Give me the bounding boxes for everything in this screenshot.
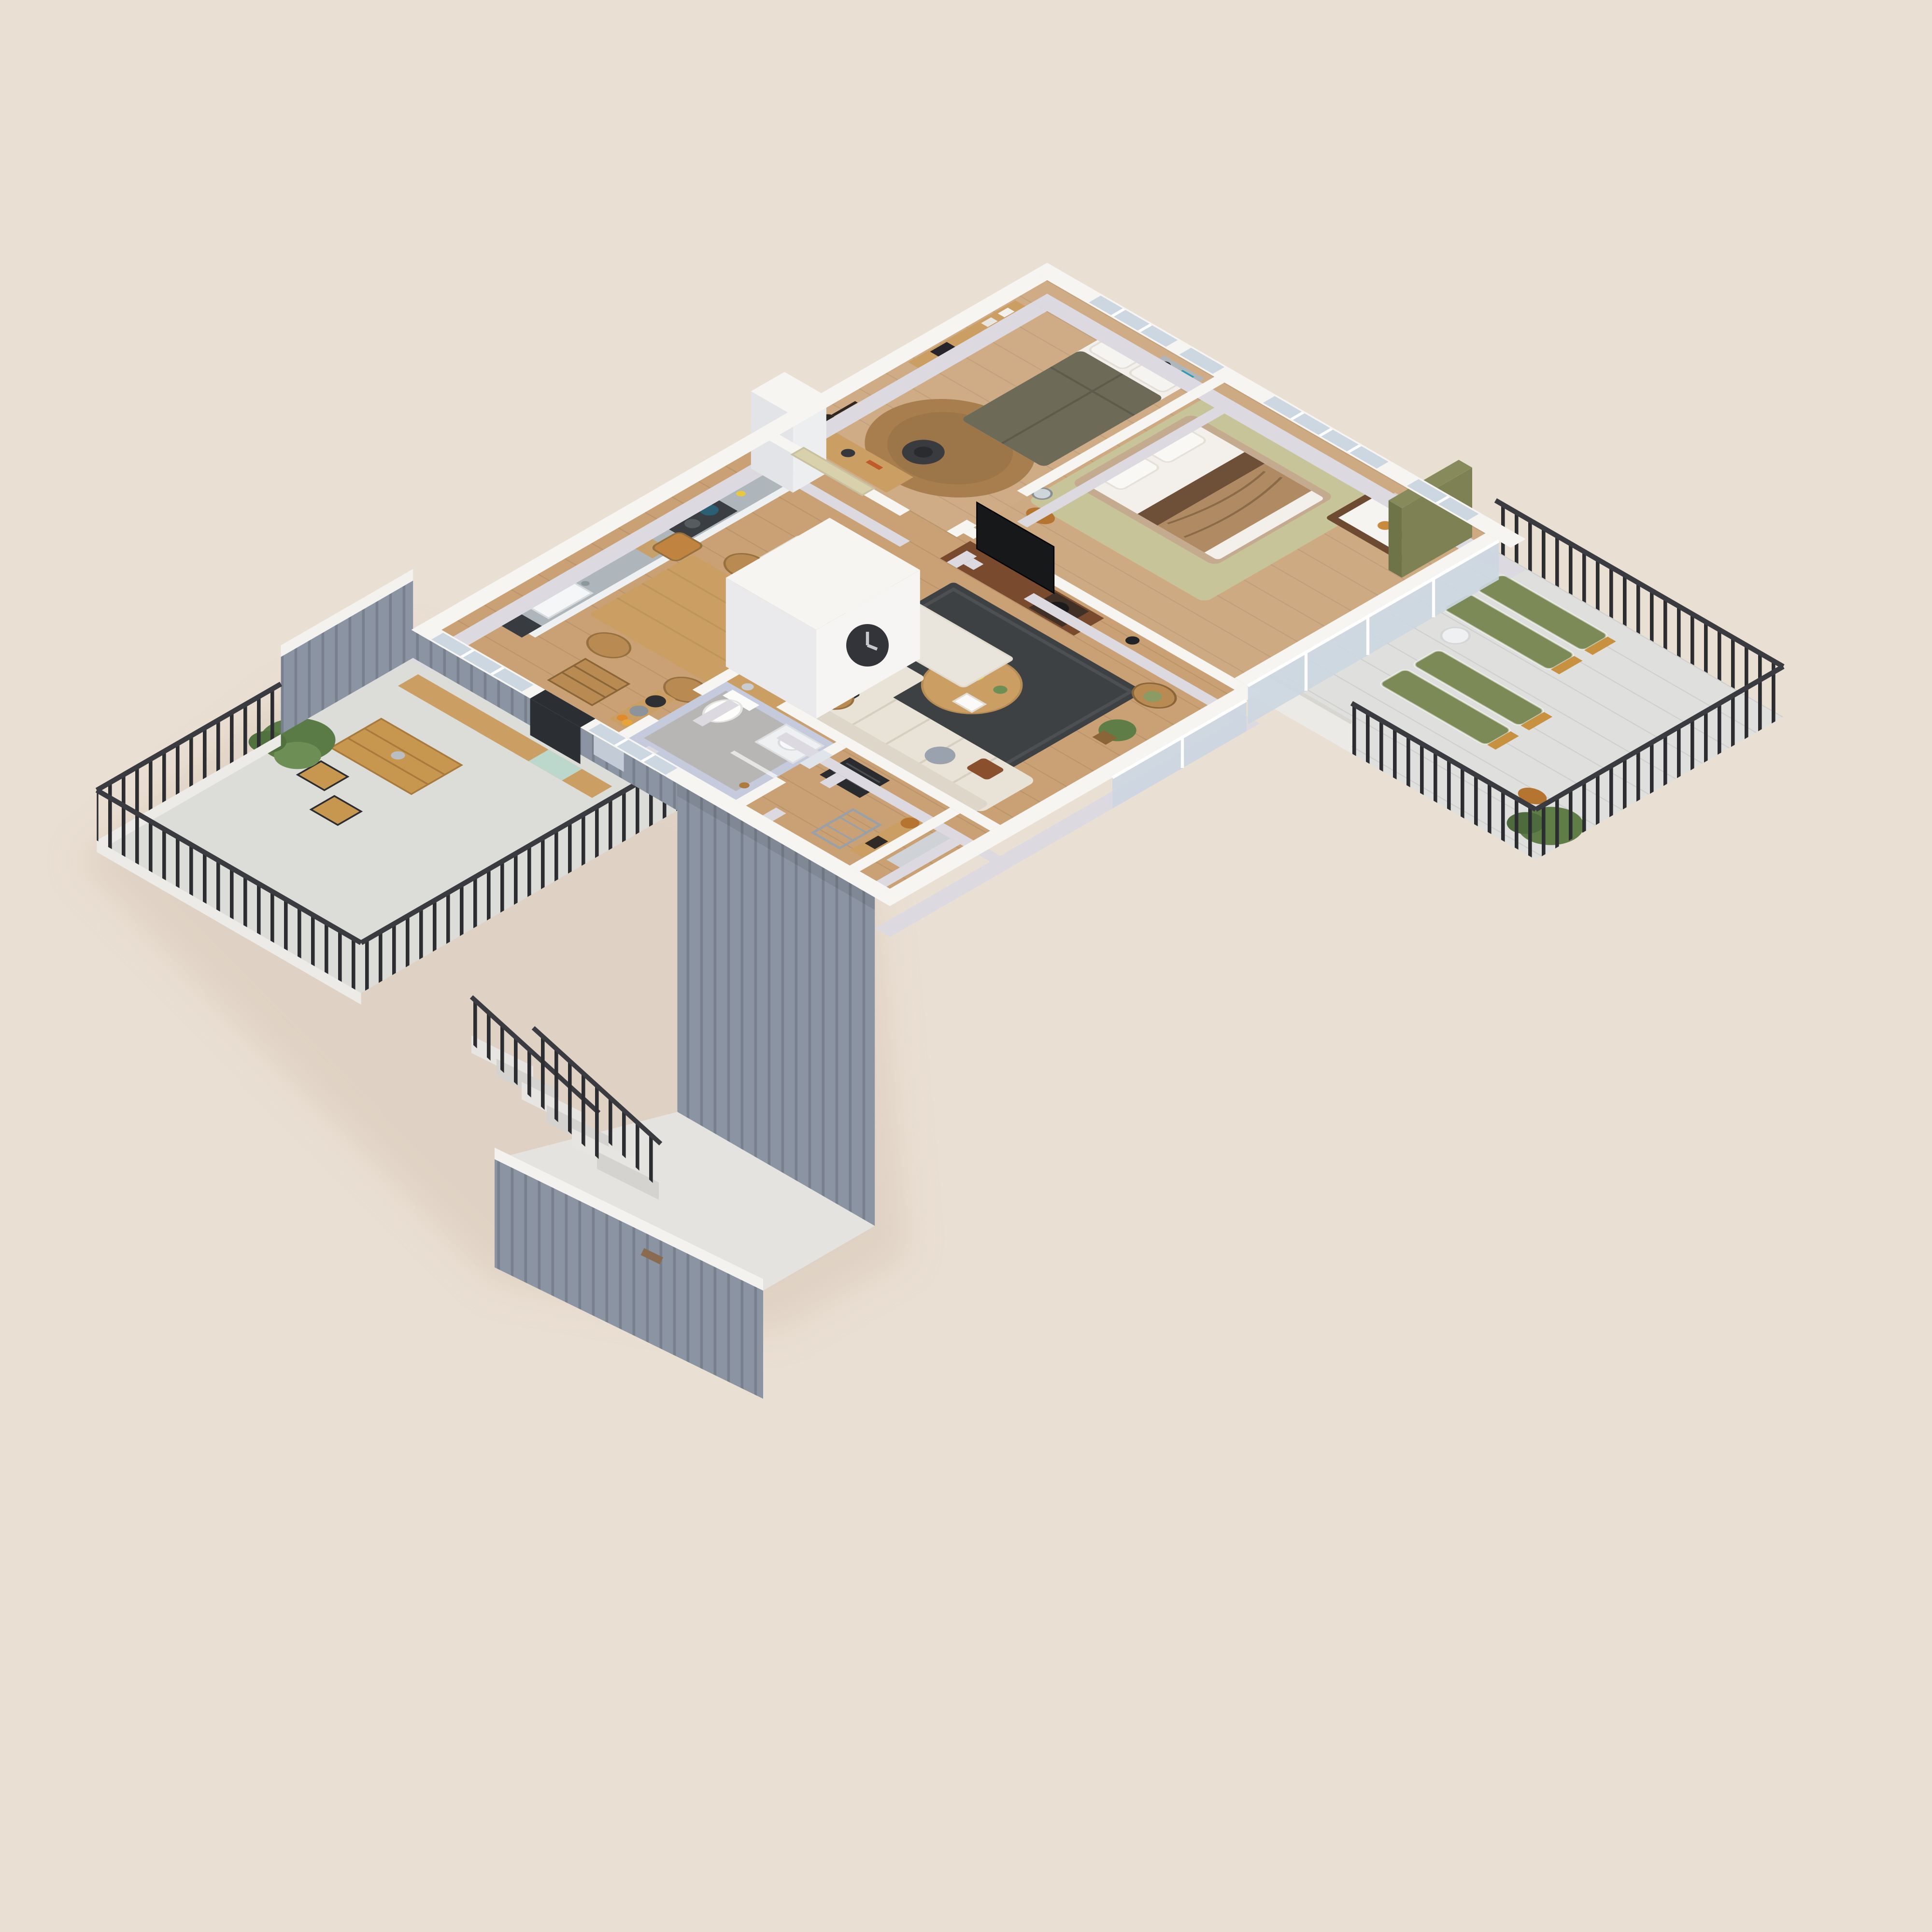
isometric-apartment-scene — [0, 0, 1932, 1932]
floorplan-render — [0, 0, 1932, 1932]
